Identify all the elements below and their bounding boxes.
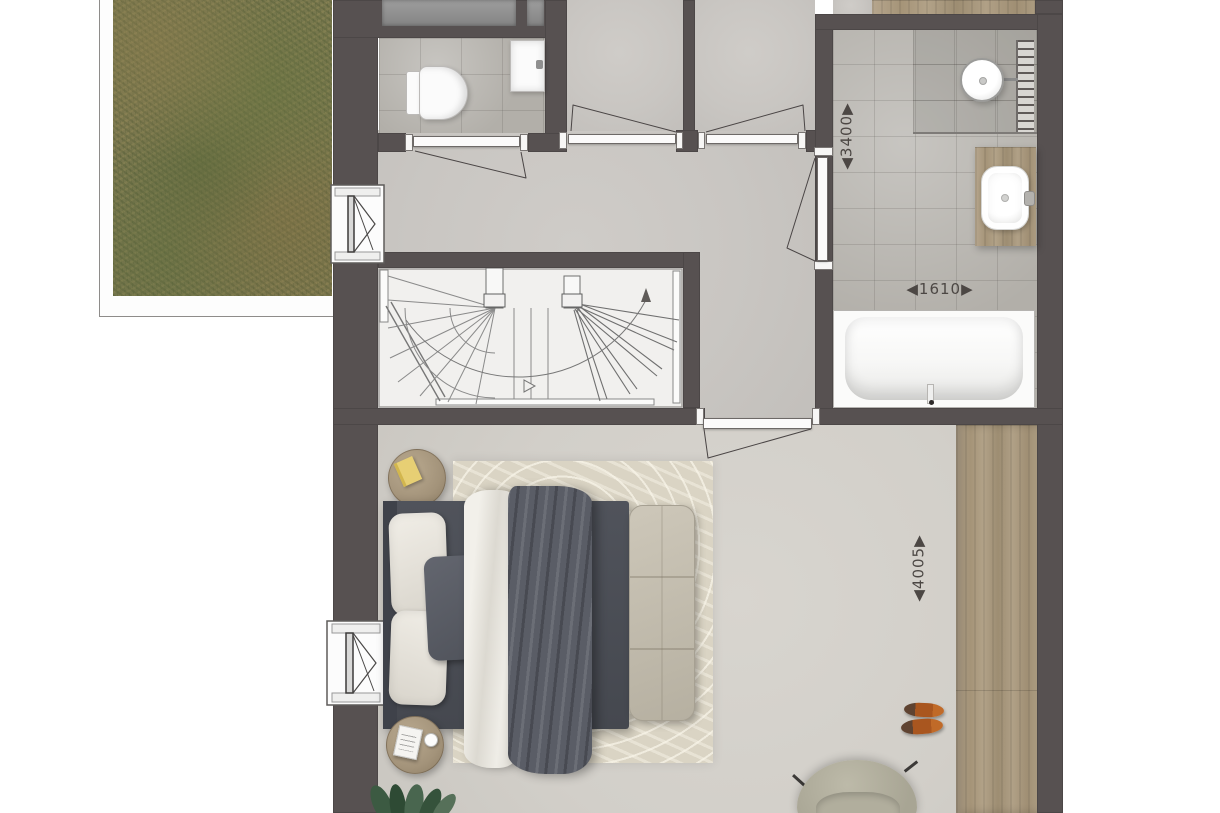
bathtub-drain [929, 400, 934, 405]
armchair-cushion [816, 792, 900, 813]
basin-faucet [1024, 191, 1035, 206]
wardrobe-above [872, 0, 1035, 14]
towel-radiator [1016, 40, 1034, 132]
shower-tray-above [382, 0, 516, 26]
rooms-above-divider-wall [683, 0, 695, 131]
room-above-floor-corner [833, 0, 872, 14]
bathroom-top-wall [815, 14, 1063, 30]
dimension-bathroom-length: ◀3400▶ [832, 90, 862, 182]
bedroom-top-wall-left [333, 408, 705, 425]
wc-door-jamb-left [405, 134, 413, 151]
wc-door [413, 136, 520, 147]
wardrobe-wood-strip [956, 425, 1037, 813]
bedroom-door-jamb-right [812, 408, 820, 425]
room-above-floor-left [567, 0, 683, 131]
door1-jamb-right [676, 132, 683, 149]
dimension-bathtub-width-text: ◀1610▶ [906, 280, 973, 298]
duvet [508, 486, 592, 774]
dimension-bathtub-width: ◀1610▶ [886, 279, 994, 299]
stairs-right-wall [683, 252, 700, 408]
bathtub-basin [845, 317, 1023, 400]
bedroom-door [703, 418, 812, 429]
landing-door-left [568, 134, 676, 144]
room-above-floor-right [695, 0, 815, 131]
basin-drain [1001, 194, 1009, 202]
wc-sink-faucet [536, 60, 543, 69]
dimension-bedroom-length-text: ◀4005▶ [910, 534, 928, 601]
shower-head-nozzle [979, 77, 987, 85]
door2-jamb-right [798, 132, 806, 149]
door1-jamb-left [559, 132, 567, 149]
top-right-corner-wall [1035, 0, 1063, 14]
bedroom-top-wall-right [812, 408, 1063, 425]
bath-door-jamb-bottom [814, 261, 833, 270]
bed-bench [629, 505, 695, 721]
bathroom-door [817, 157, 828, 261]
window-upper [330, 184, 385, 264]
dimension-bathroom-length-text: ◀3400▶ [838, 102, 856, 169]
staircase [378, 268, 683, 408]
door2-jamb-left [698, 132, 705, 149]
wc-door-jamb-right [520, 134, 528, 151]
stairs-top-wall [378, 252, 700, 268]
cup [424, 733, 438, 747]
shower-screen [913, 132, 1037, 134]
wc-right-wall [545, 0, 567, 152]
floor-plan: ◀3400▶ ◀1610▶ ◀4005▶ [0, 0, 1220, 813]
landing-door-right [706, 134, 798, 144]
duct-above [527, 0, 544, 26]
potted-plant [360, 778, 460, 813]
dimension-bedroom-length: ◀4005▶ [904, 520, 934, 616]
wc-bottom-wall-left [378, 133, 406, 152]
window-lower [326, 620, 386, 706]
green-roof [113, 0, 332, 296]
bath-door-jamb-top [814, 147, 833, 156]
